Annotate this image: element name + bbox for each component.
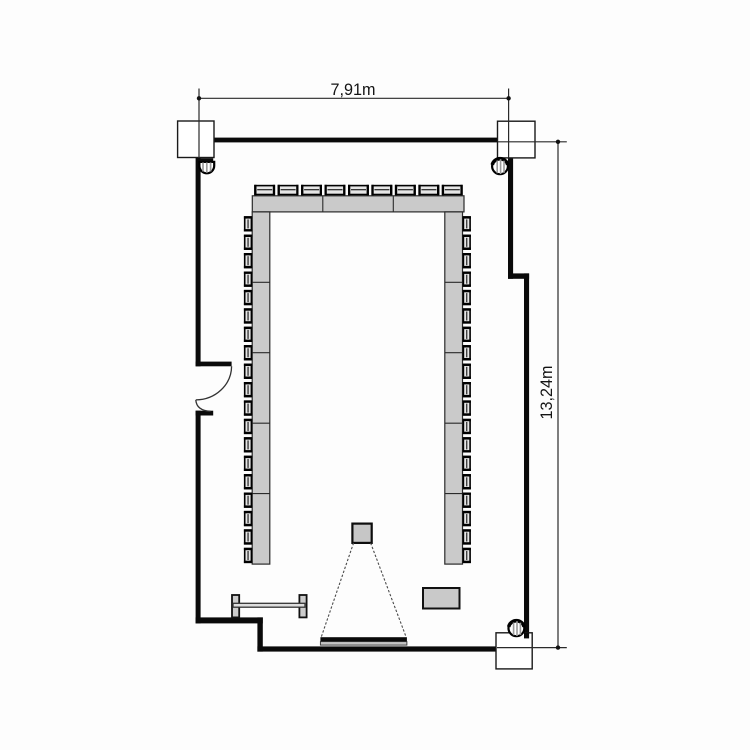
svg-text:7,91m: 7,91m [331,81,376,99]
svg-text:13,24m: 13,24m [538,366,556,420]
